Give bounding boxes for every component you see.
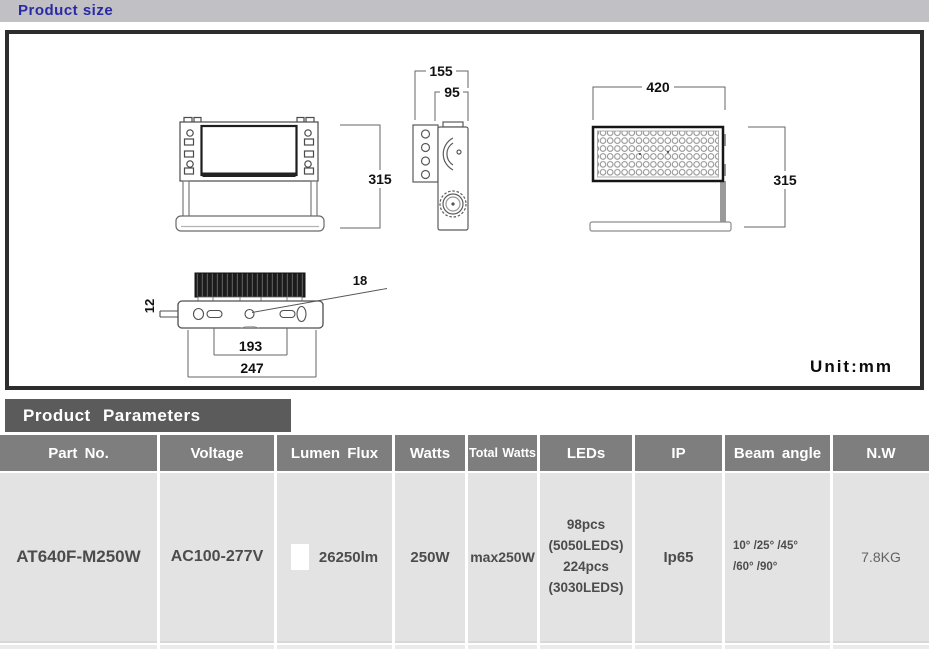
section-title-product-parameters: Product Parameters	[5, 399, 291, 432]
front-view-drawing	[176, 118, 324, 232]
cell-net-weight: 7.8KG	[833, 473, 929, 643]
next-row-sliver	[395, 645, 465, 649]
beam-angle-line-1: 10° /25° /45°	[733, 536, 798, 557]
dim-hole-diameter: 18	[353, 273, 367, 288]
unit-label: Unit:mm	[810, 357, 893, 376]
dim-label-base-length: 247	[240, 360, 264, 376]
dim-label-panel-width: 420	[646, 79, 670, 95]
column-header-leds: LEDs	[540, 435, 632, 471]
dim-label-front-height: 315	[368, 171, 392, 187]
next-row-sliver	[0, 645, 157, 649]
column-header-part-no: Part No.	[0, 435, 157, 471]
dim-slot-spacing: 193	[214, 328, 287, 355]
dim-pin-diameter: 12	[142, 299, 157, 313]
dim-label-hole-diameter: 18	[353, 273, 367, 288]
dim-label-pin-diameter: 12	[142, 299, 157, 313]
lumen-flux-value: 26250lm	[319, 549, 378, 566]
dim-front-height: 315	[340, 125, 398, 228]
next-row-sliver	[540, 645, 632, 649]
next-row-sliver	[468, 645, 537, 649]
column-header-total-watts: Total Watts	[468, 435, 537, 471]
leds-line-1: 98pcs	[567, 515, 605, 536]
dim-label-side-body-width: 95	[444, 84, 460, 100]
cell-watts: 250W	[395, 473, 465, 643]
next-row-sliver	[833, 645, 929, 649]
leds-line-2: (5050LEDS)	[548, 536, 623, 557]
column-header-beam-angle: Beam angle	[725, 435, 830, 471]
cell-leds: 98pcs (5050LEDS) 224pcs (3030LEDS)	[540, 473, 632, 643]
column-header-voltage: Voltage	[160, 435, 274, 471]
column-header-nw: N.W	[833, 435, 929, 471]
cell-part-no: AT640F-M250W	[0, 473, 157, 643]
parameters-table: Part No. Voltage Lumen Flux Watts Total …	[0, 435, 929, 649]
white-color-swatch	[291, 544, 309, 570]
next-row-sliver	[635, 645, 722, 649]
cell-total-watts: max250W	[468, 473, 537, 643]
dim-label-side-overall-width: 155	[429, 63, 453, 79]
page-title: Product size	[18, 0, 113, 21]
product-size-diagram-box: 315 155 95	[5, 30, 924, 390]
cell-ip: Ip65	[635, 473, 722, 643]
next-row-sliver	[725, 645, 830, 649]
dim-side-body-width: 95	[435, 84, 468, 121]
cell-voltage: AC100-277V	[160, 473, 274, 643]
next-row-sliver	[277, 645, 392, 649]
page-title-bar: Product size	[0, 0, 929, 22]
column-header-watts: Watts	[395, 435, 465, 471]
dim-panel-height: 315	[744, 127, 803, 227]
size-diagram: 315 155 95	[9, 34, 920, 386]
cell-beam-angle: 10° /25° /45° /60° /90°	[725, 473, 830, 643]
cell-lumen-flux: 26250lm	[277, 473, 392, 643]
leds-line-4: (3030LEDS)	[548, 578, 623, 599]
beam-angle-line-2: /60° /90°	[733, 557, 777, 578]
dim-label-panel-height: 315	[773, 172, 797, 188]
led-panel-drawing	[590, 127, 731, 231]
side-view-drawing	[413, 122, 468, 230]
next-row-sliver	[160, 645, 274, 649]
leds-line-3: 224pcs	[563, 557, 609, 578]
dim-panel-width: 420	[593, 79, 725, 120]
dim-label-slot-spacing: 193	[239, 338, 263, 354]
column-header-lumen-flux: Lumen Flux	[277, 435, 392, 471]
column-header-ip: IP	[635, 435, 722, 471]
